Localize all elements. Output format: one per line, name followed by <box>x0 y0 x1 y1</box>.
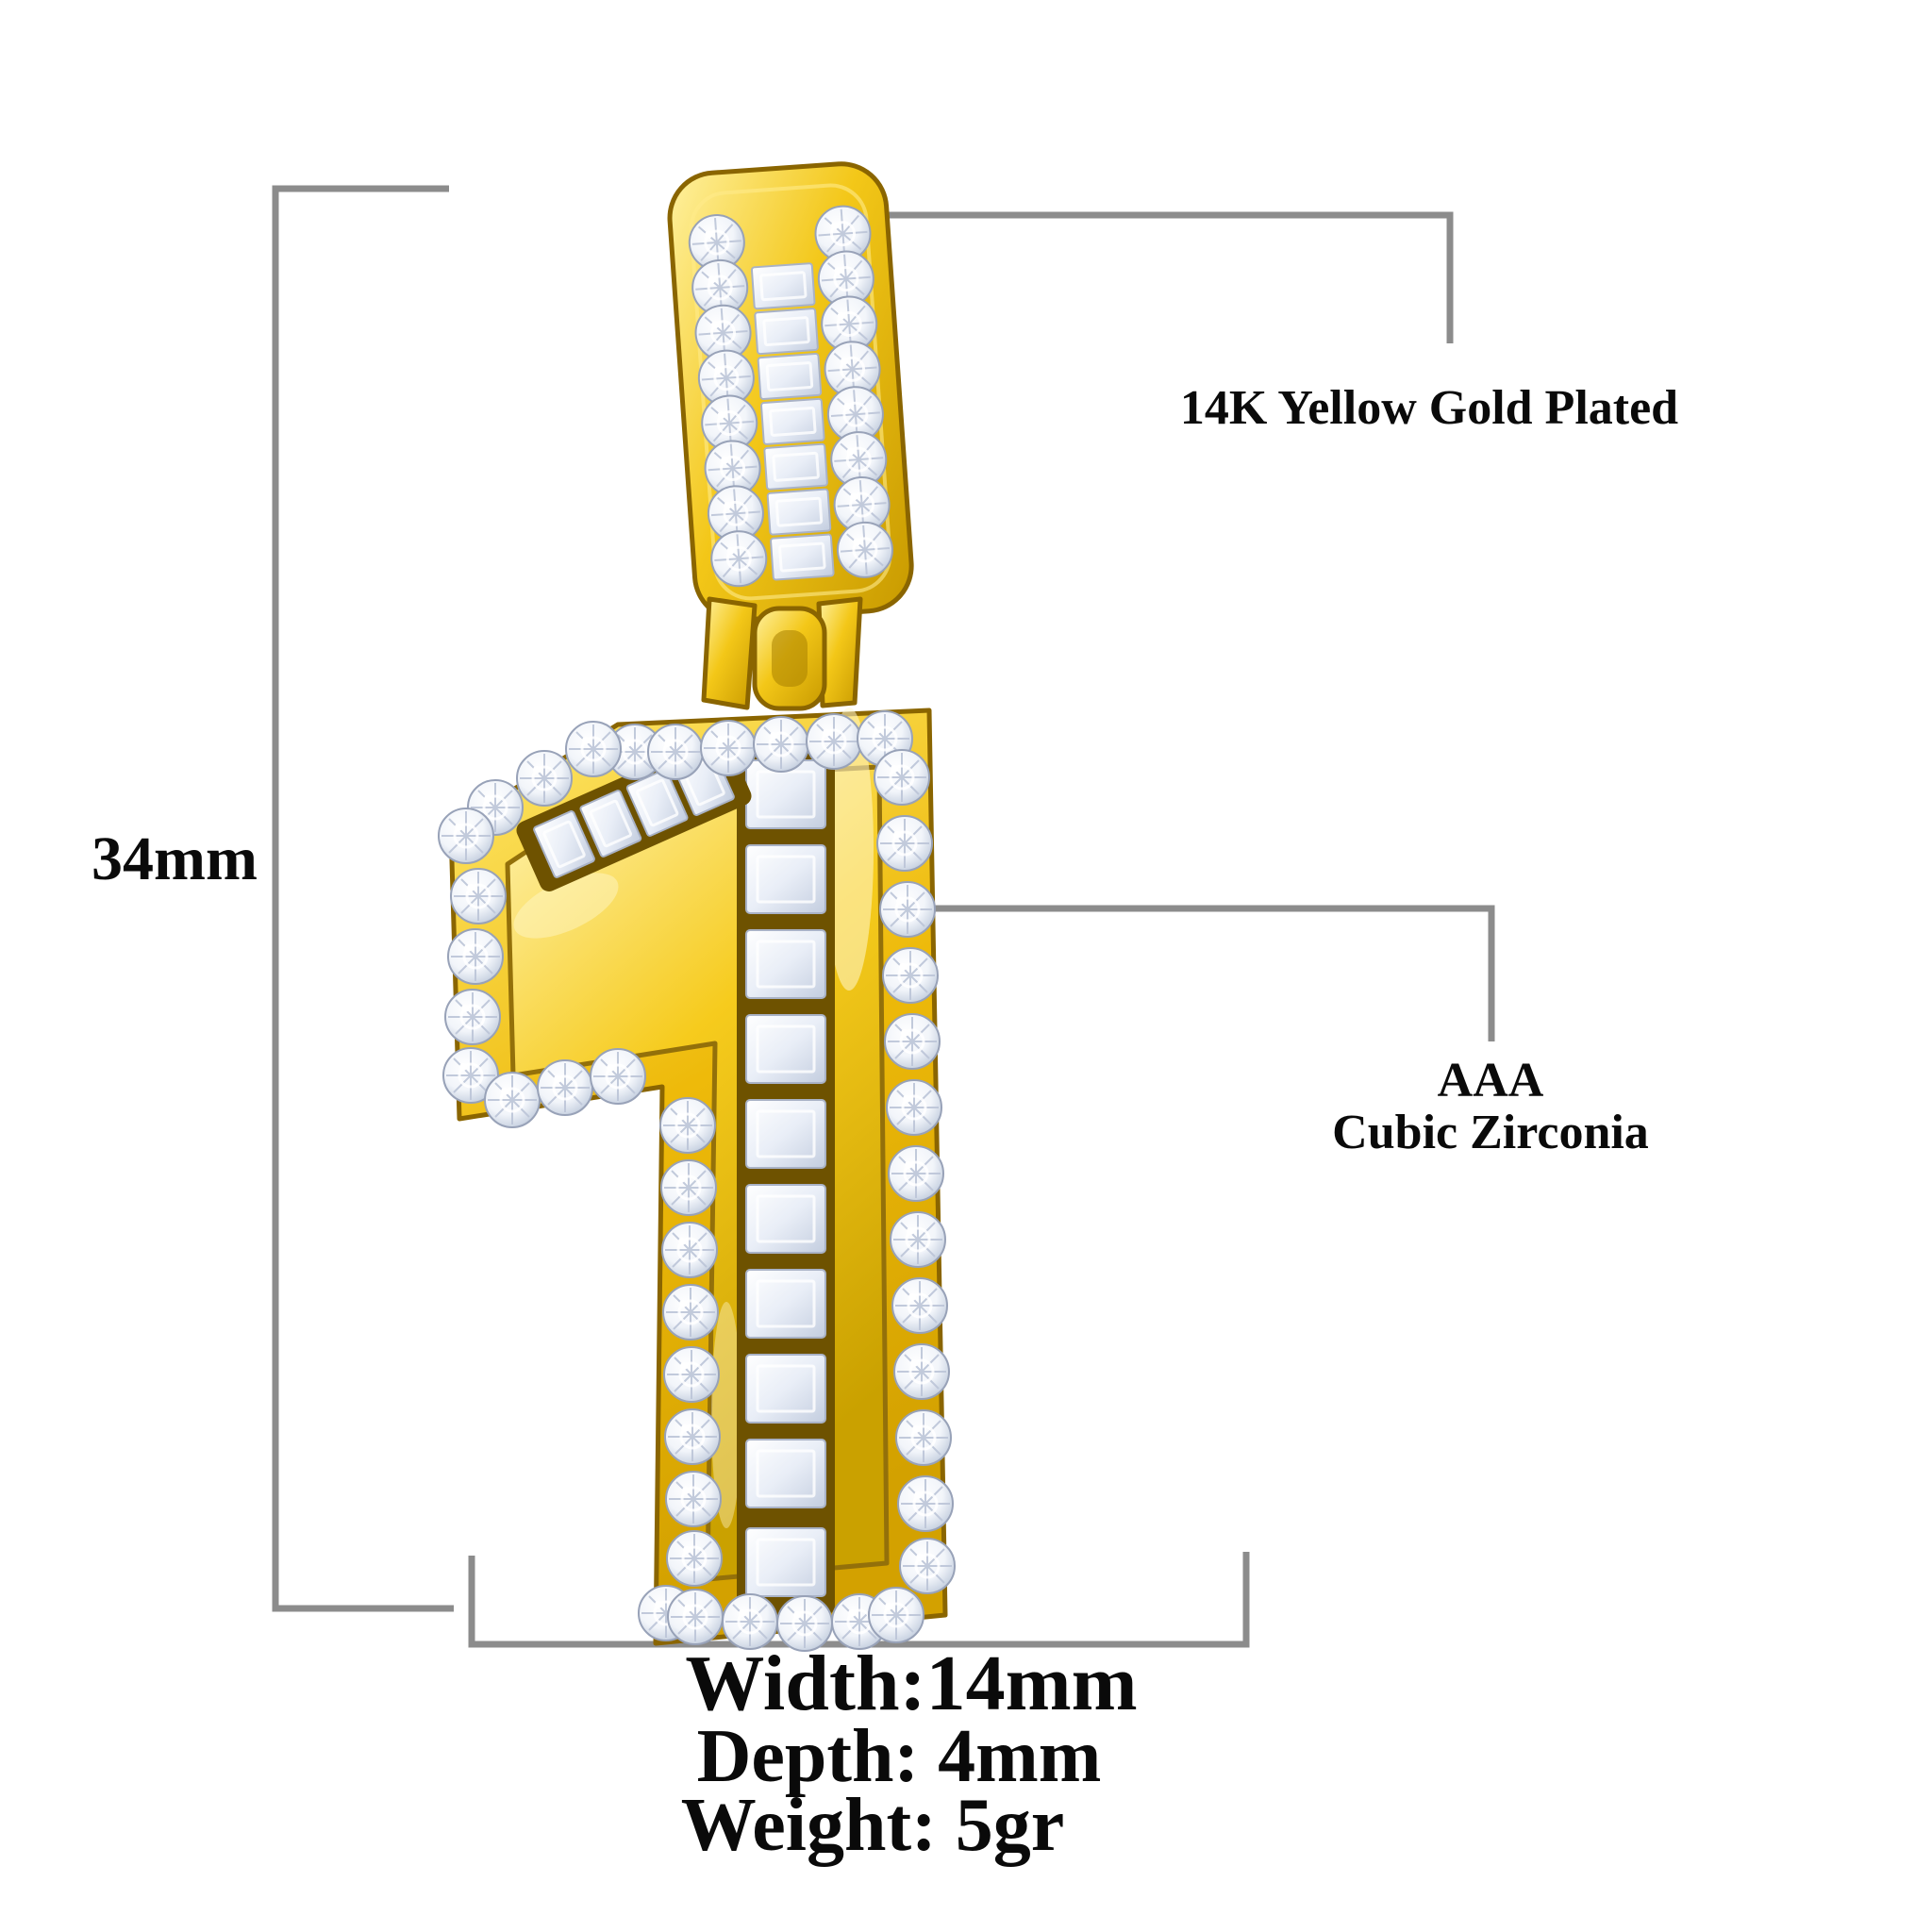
stone-quality-label: AAACubic Zirconia <box>1207 1055 1774 1158</box>
depth-dimension-label: Depth: 4mm <box>522 1719 1276 1794</box>
stone-type-text: Cubic Zirconia <box>1332 1106 1649 1159</box>
weight-dimension-label: Weight: 5gr <box>495 1788 1250 1863</box>
height-dimension-label: 34mm <box>38 828 311 891</box>
material-callout-line <box>842 215 1450 343</box>
pendant-numeral <box>439 708 955 1651</box>
height-bracket-line <box>275 189 454 1608</box>
stone-callout-line <box>913 908 1491 1041</box>
pendant-bail <box>667 161 915 624</box>
product-dimension-diagram: 34mm 14K Yellow Gold Plated AAACubic Zir… <box>0 0 1932 1932</box>
stone-grade-text: AAA <box>1438 1054 1544 1108</box>
material-label: 14K Yellow Gold Plated <box>1146 384 1712 433</box>
pendant-hinge <box>704 599 860 708</box>
width-dimension-label: Width:14mm <box>534 1644 1289 1724</box>
